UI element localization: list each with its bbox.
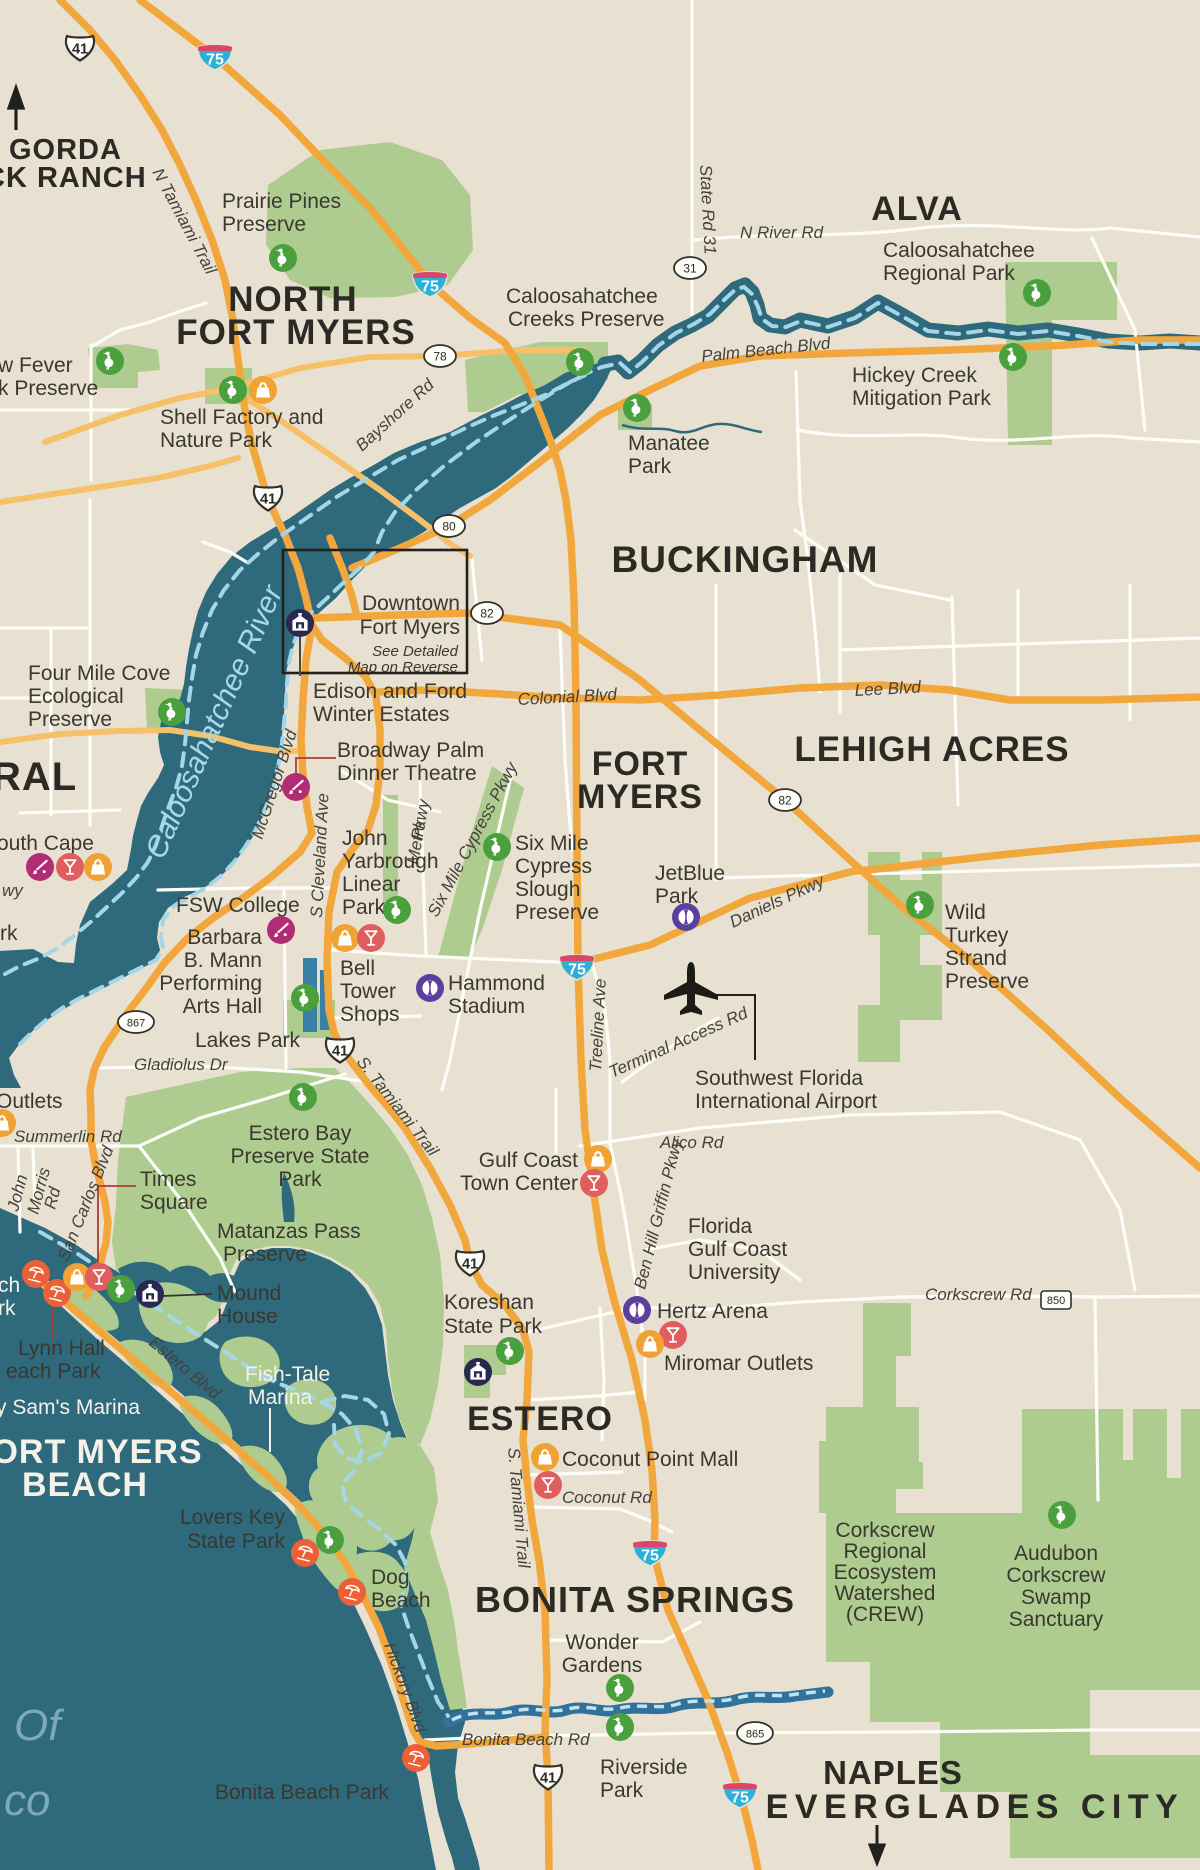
svg-text:FORT MYERS: FORT MYERS	[176, 313, 415, 352]
svg-text:Riverside: Riverside	[600, 1756, 688, 1779]
svg-text:82: 82	[778, 794, 792, 808]
svg-text:Hickey Creek: Hickey Creek	[852, 364, 977, 387]
svg-text:Bonita Beach Park: Bonita Beach Park	[215, 1781, 389, 1804]
svg-text:State Park: State Park	[187, 1530, 286, 1553]
svg-text:Yarbrough: Yarbrough	[342, 850, 439, 873]
svg-text:Park: Park	[342, 896, 386, 919]
svg-text:Koreshan: Koreshan	[444, 1291, 534, 1314]
svg-text:Lovers Key: Lovers Key	[180, 1506, 286, 1529]
svg-text:78: 78	[433, 350, 447, 364]
svg-text:Creeks Preserve: Creeks Preserve	[508, 308, 664, 331]
svg-text:Shops: Shops	[340, 1003, 400, 1026]
svg-text:FSW College: FSW College	[176, 894, 300, 917]
svg-text:Ecosystem: Ecosystem	[834, 1561, 937, 1584]
svg-text:Ecological: Ecological	[28, 685, 124, 708]
svg-text:82: 82	[480, 607, 494, 621]
svg-text:Southwest Florida: Southwest Florida	[695, 1067, 863, 1090]
svg-text:Manatee: Manatee	[628, 432, 710, 455]
svg-text:ESTERO: ESTERO	[467, 1400, 613, 1438]
svg-text:Six Mile: Six Mile	[515, 832, 589, 855]
svg-text:Florida: Florida	[688, 1215, 753, 1238]
svg-text:Strand: Strand	[945, 947, 1007, 970]
svg-text:Mound: Mound	[217, 1282, 281, 1305]
svg-text:BUCKINGHAM: BUCKINGHAM	[612, 539, 879, 580]
svg-text:each Park: each Park	[6, 1360, 101, 1383]
svg-text:Park: Park	[278, 1168, 322, 1191]
svg-text:EVERGLADES CITY: EVERGLADES CITY	[766, 1788, 1185, 1826]
svg-text:University: University	[688, 1261, 781, 1284]
svg-text:Broadway Palm: Broadway Palm	[337, 739, 484, 762]
svg-text:Beach: Beach	[371, 1589, 431, 1612]
svg-text:Slough: Slough	[515, 878, 580, 901]
svg-text:Gulf Coast: Gulf Coast	[479, 1149, 578, 1172]
svg-text:Mitigation Park: Mitigation Park	[852, 387, 991, 410]
svg-text:Summerlin Rd: Summerlin Rd	[14, 1127, 122, 1146]
svg-text:Linear: Linear	[342, 873, 400, 896]
svg-text:Preserve: Preserve	[28, 708, 112, 731]
svg-text:Winter Estates: Winter Estates	[313, 703, 450, 726]
svg-text:rk: rk	[0, 922, 18, 945]
svg-text:Matanzas Pass: Matanzas Pass	[217, 1220, 361, 1243]
svg-text:MYERS: MYERS	[577, 778, 703, 816]
svg-text:Gardens: Gardens	[562, 1654, 643, 1677]
svg-text:BEACH: BEACH	[22, 1466, 148, 1504]
svg-text:House: House	[217, 1305, 278, 1328]
svg-text:Hammond: Hammond	[448, 972, 545, 995]
svg-text:Nature Park: Nature Park	[160, 429, 273, 452]
svg-text:Turkey: Turkey	[945, 924, 1009, 947]
svg-text:31: 31	[683, 262, 697, 276]
svg-text:B. Mann: B. Mann	[184, 949, 262, 972]
svg-text:wy: wy	[2, 881, 24, 900]
svg-text:N River Rd: N River Rd	[740, 223, 824, 242]
svg-text:Gladiolus Dr: Gladiolus Dr	[134, 1055, 229, 1074]
svg-text:JetBlue: JetBlue	[655, 862, 725, 885]
svg-text:Bell: Bell	[340, 957, 375, 980]
svg-text:Marina: Marina	[248, 1386, 313, 1409]
svg-text:Coconut Rd: Coconut Rd	[562, 1488, 652, 1507]
svg-text:Dinner Theatre: Dinner Theatre	[337, 762, 477, 785]
svg-text:Square: Square	[140, 1191, 208, 1214]
svg-text:outh Cape: outh Cape	[0, 832, 94, 855]
svg-text:Preserve: Preserve	[223, 1243, 307, 1266]
svg-text:Stadium: Stadium	[448, 995, 525, 1018]
svg-text:Caloosahatchee: Caloosahatchee	[883, 239, 1035, 262]
svg-text:Times: Times	[140, 1168, 196, 1191]
svg-text:Corkscrew: Corkscrew	[1006, 1564, 1106, 1587]
svg-text:Four Mile Cove: Four Mile Cove	[28, 662, 170, 685]
svg-text:Shell Factory and: Shell Factory and	[160, 406, 323, 429]
svg-text:850: 850	[1047, 1295, 1065, 1307]
svg-text:(CREW): (CREW)	[846, 1603, 924, 1626]
svg-text:Park: Park	[600, 1779, 644, 1802]
svg-text:Caloosahatchee: Caloosahatchee	[506, 285, 658, 308]
svg-text:LEHIGH ACRES: LEHIGH ACRES	[794, 730, 1069, 769]
svg-text:co: co	[4, 1776, 50, 1825]
svg-text:Corkscrew Rd: Corkscrew Rd	[925, 1285, 1032, 1304]
svg-text:John: John	[342, 827, 388, 850]
svg-text:Map on Reverse: Map on Reverse	[348, 659, 458, 676]
svg-text:w Fever: w Fever	[0, 354, 73, 377]
svg-text:80: 80	[442, 520, 456, 534]
svg-text:Performing: Performing	[159, 972, 262, 995]
svg-text:Dog: Dog	[371, 1566, 410, 1589]
svg-text:Wild: Wild	[945, 901, 986, 924]
svg-text:Regional: Regional	[844, 1540, 927, 1563]
svg-text:Regional Park: Regional Park	[883, 262, 1015, 285]
svg-text:Of: Of	[14, 1701, 65, 1750]
svg-text:BONITA SPRINGS: BONITA SPRINGS	[475, 1579, 795, 1620]
svg-text:State Park: State Park	[444, 1315, 543, 1338]
svg-text:ch: ch	[0, 1274, 20, 1297]
svg-text:Lynn Hall: Lynn Hall	[18, 1337, 105, 1360]
svg-text:Miromar Outlets: Miromar Outlets	[664, 1352, 813, 1375]
svg-text:Tower: Tower	[340, 980, 396, 1003]
svg-text:Coconut Point Mall: Coconut Point Mall	[562, 1448, 738, 1471]
svg-text:ALVA: ALVA	[871, 190, 963, 228]
svg-text:Preserve: Preserve	[515, 901, 599, 924]
svg-text:Watershed: Watershed	[835, 1582, 936, 1605]
svg-text:rk: rk	[0, 1297, 16, 1320]
svg-text:Lakes Park: Lakes Park	[195, 1029, 301, 1052]
svg-text:Prairie Pines: Prairie Pines	[222, 190, 341, 213]
svg-text:Corkscrew: Corkscrew	[835, 1519, 935, 1542]
svg-text:k Preserve: k Preserve	[0, 377, 98, 400]
svg-text:Arts Hall: Arts Hall	[183, 995, 262, 1018]
svg-text:865: 865	[746, 1729, 764, 1741]
svg-text:Hertz Arena: Hertz Arena	[657, 1300, 768, 1323]
svg-text:Wonder: Wonder	[565, 1631, 638, 1654]
svg-text:Preserve: Preserve	[222, 213, 306, 236]
svg-text:Bonita Beach Rd: Bonita Beach Rd	[462, 1730, 590, 1749]
svg-text:Fort Myers: Fort Myers	[360, 616, 460, 639]
svg-text:Sanctuary: Sanctuary	[1009, 1608, 1104, 1631]
svg-text:Park: Park	[628, 455, 672, 478]
svg-text:Lee Blvd: Lee Blvd	[854, 678, 922, 700]
svg-text:Barbara: Barbara	[187, 926, 262, 949]
svg-text:Swamp: Swamp	[1021, 1586, 1091, 1609]
svg-text:Audubon: Audubon	[1014, 1542, 1098, 1565]
svg-text:CK RANCH: CK RANCH	[0, 162, 147, 194]
svg-text:Preserve State: Preserve State	[231, 1145, 370, 1168]
svg-text:Town Center: Town Center	[460, 1172, 578, 1195]
svg-text:NAPLES: NAPLES	[823, 1754, 963, 1791]
svg-text:See Detailed: See Detailed	[372, 643, 459, 660]
svg-text:867: 867	[127, 1018, 145, 1030]
svg-text:y Sam's Marina: y Sam's Marina	[0, 1396, 140, 1419]
svg-text:Preserve: Preserve	[945, 970, 1029, 993]
svg-text:Fish-Tale: Fish-Tale	[245, 1363, 330, 1386]
svg-text:International Airport: International Airport	[695, 1090, 877, 1113]
svg-text:Estero Bay: Estero Bay	[249, 1122, 352, 1145]
svg-text:Cypress: Cypress	[515, 855, 592, 878]
svg-text:RAL: RAL	[0, 755, 77, 799]
svg-text:Downtown: Downtown	[362, 592, 460, 615]
svg-text:Outlets: Outlets	[0, 1090, 63, 1113]
svg-text:Edison and Ford: Edison and Ford	[313, 680, 467, 703]
svg-text:Gulf Coast: Gulf Coast	[688, 1238, 787, 1261]
